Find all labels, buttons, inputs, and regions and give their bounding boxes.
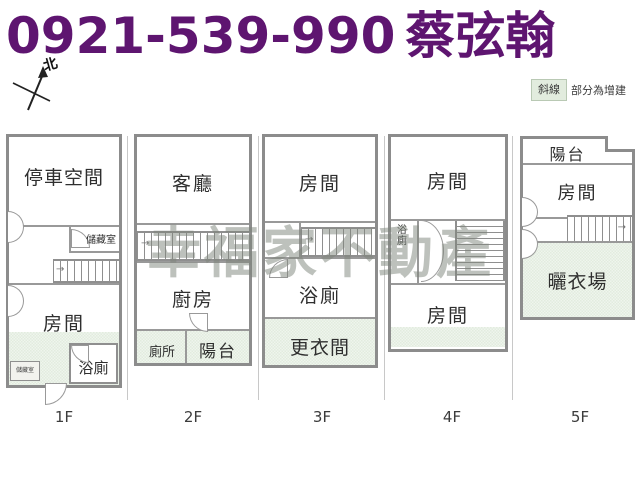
floor-tag-3f: 3F: [292, 408, 352, 426]
room-label-room: 房間: [265, 169, 375, 196]
floor-tag-2f: 2F: [163, 408, 223, 426]
legend-description: 部分為增建: [571, 82, 626, 98]
room-label-drying: 曬衣場: [523, 267, 632, 294]
wall: [69, 251, 119, 253]
stairs-direction-arrow-icon: [618, 222, 626, 233]
floorplan-flyer: 0921-539-990蔡弦翰 北 斜線 部分為增建 停車空間 儲藏室 房間 浴…: [0, 0, 640, 480]
north-compass-icon: 北: [8, 56, 64, 122]
agent-name: 蔡弦翰: [405, 7, 555, 65]
room-label-room: 房間: [523, 179, 632, 205]
plan-divider-line: [127, 136, 128, 400]
room-label-kitchen: 廚房: [137, 285, 249, 312]
annex-shaded-strip: [391, 327, 505, 347]
legend-hatch-swatch: 斜線: [531, 79, 567, 101]
floorplan-1f: 停車空間 儲藏室 房間 浴廁 儲藏室: [6, 134, 122, 388]
floor-tag-5f: 5F: [550, 408, 610, 426]
room-label-bath: 浴廁: [71, 357, 116, 378]
floor-tag-4f: 4F: [422, 408, 482, 426]
floorplan-5f: 陽台 房間 曬衣場: [520, 136, 635, 320]
room-label-toilet: 廁所: [139, 341, 185, 360]
legend: 斜線 部分為增建: [531, 79, 626, 101]
room-label-parking: 停車空間: [9, 163, 119, 190]
small-storage-box: 儲藏室: [10, 361, 40, 381]
watermark-text: 幸福家不動產: [146, 208, 494, 288]
wall: [9, 283, 119, 285]
floor-tag-1f: 1F: [34, 408, 94, 426]
room-label-dressing: 更衣間: [265, 333, 375, 360]
room-label-storage: 儲藏室: [86, 231, 116, 246]
room-label-room-top: 房間: [391, 167, 505, 194]
contact-header: 0921-539-990蔡弦翰: [6, 0, 640, 68]
door-arc: [8, 211, 24, 243]
room-label-balcony: 陽台: [187, 337, 249, 362]
compass-north-label: 北: [42, 56, 60, 75]
wall: [9, 225, 119, 227]
phone-number: 0921-539-990: [6, 7, 395, 65]
room-label-room-bottom: 房間: [391, 301, 505, 328]
stairs-direction-arrow-icon: [56, 264, 64, 275]
plan-divider-line: [512, 136, 513, 400]
entry-door-arc: [45, 383, 67, 405]
room-label-room: 房間: [9, 309, 119, 336]
room-label-living: 客廳: [137, 169, 249, 196]
room-label-balcony: 陽台: [523, 141, 612, 165]
